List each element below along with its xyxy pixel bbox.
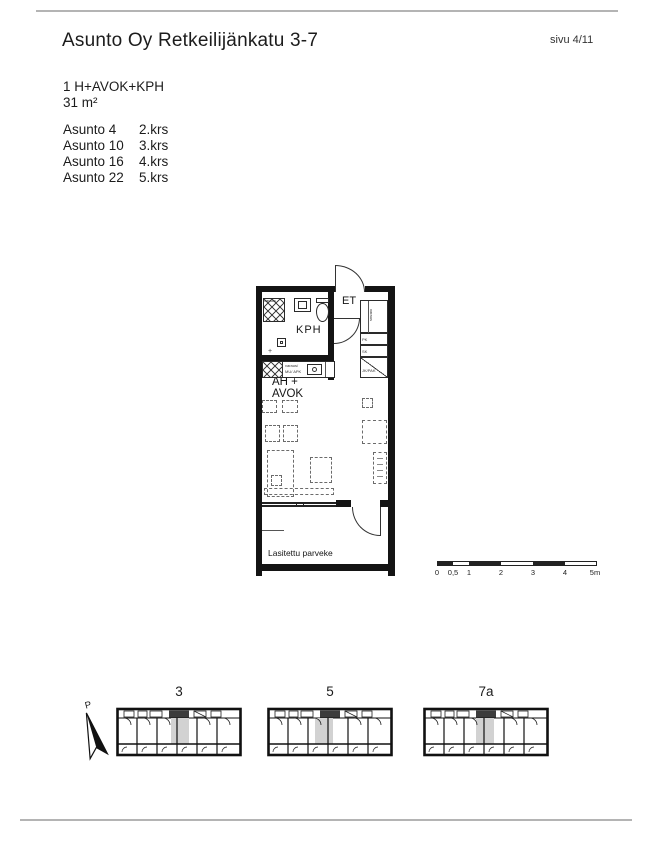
floor-plan: ET KPH AH + AVOK varaus + varaus PK SK	[256, 258, 395, 580]
furniture-outline	[265, 425, 280, 442]
bathroom-sink-box	[277, 338, 286, 347]
hall-door-arc	[334, 318, 360, 344]
scale-tick-label: 0	[435, 568, 439, 577]
counter-cell-line	[325, 362, 326, 377]
unit-floor: 4.krs	[139, 154, 168, 170]
furniture-outline	[362, 420, 387, 444]
top-scan-line	[36, 10, 618, 12]
kitchen-corner-cabinet	[263, 362, 283, 377]
cabinet-fridge-freezer: JK/PAK	[360, 357, 388, 378]
apartment-area: 31 m²	[63, 95, 164, 111]
balcony-door-leaf	[380, 507, 381, 536]
building-label: 3	[116, 684, 242, 701]
furniture-detail	[271, 475, 282, 486]
scale-tick-label: 0,5	[448, 568, 458, 577]
apartment-info: 1 H+AVOK+KPH 31 m²	[63, 79, 164, 111]
unit-row: Asunto 22 5.krs	[63, 170, 168, 186]
unit-name: Asunto 10	[63, 138, 139, 154]
document-page: Asunto Oy Retkeilijänkatu 3-7 sivu 4/11 …	[0, 0, 649, 842]
unit-row: Asunto 4 2.krs	[63, 122, 168, 138]
furniture-outline	[282, 400, 298, 413]
unit-row: Asunto 16 4.krs	[63, 154, 168, 170]
building-label: 7a	[423, 684, 549, 701]
kitchen-faucet	[312, 367, 317, 372]
unit-name: Asunto 16	[63, 154, 139, 170]
counter-rotated-text: varaus	[369, 309, 374, 321]
unit-name: Asunto 4	[63, 122, 139, 138]
window-band	[262, 502, 336, 507]
washing-machine-drum	[298, 301, 307, 309]
furniture-table-outline	[310, 457, 332, 483]
furniture-shelf-outline	[373, 452, 387, 484]
unit-name: Asunto 22	[63, 170, 139, 186]
furniture-outline-low	[264, 488, 334, 495]
scale-fill	[469, 561, 501, 566]
unit-floor: 3.krs	[139, 138, 168, 154]
scale-tick-label: 3	[531, 568, 535, 577]
apartment-type: 1 H+AVOK+KPH	[63, 79, 164, 95]
cabinet-sk: SK	[360, 345, 388, 357]
wall-right	[388, 286, 395, 576]
furniture-outline	[262, 400, 277, 413]
kitchen-counter-row: varaus/ MU/ APK	[262, 361, 335, 378]
wall-pier	[336, 500, 351, 507]
furniture-outline	[283, 425, 298, 442]
bottom-scan-line	[20, 819, 632, 821]
unit-floor: 2.krs	[139, 122, 168, 138]
bathroom-closet-text: varaus	[264, 299, 276, 304]
building-plan-icon	[423, 701, 549, 763]
scale-tick-label: 1	[467, 568, 471, 577]
kitchen-small-text1: varaus/	[285, 364, 298, 369]
wall-balcony-bottom	[256, 564, 395, 571]
scale-tick-label: 5m	[590, 568, 600, 577]
window-mullion	[296, 504, 304, 505]
site-building-7a: 7a	[423, 684, 549, 768]
living-room-label: AH + AVOK	[272, 376, 303, 400]
sink-drain	[280, 341, 283, 344]
scale-fill	[437, 561, 453, 566]
washing-machine	[294, 298, 311, 312]
wall-left	[256, 286, 262, 576]
furniture-outline	[362, 398, 373, 408]
scale-fill	[533, 561, 565, 566]
balcony-rail-tick	[262, 530, 284, 531]
scale-bar-outline	[437, 561, 597, 566]
page-number: sivu 4/11	[550, 34, 593, 46]
cabinet-pk: PK	[360, 333, 388, 345]
site-building-5: 5	[267, 684, 393, 768]
page-title: Asunto Oy Retkeilijänkatu 3-7	[62, 30, 318, 52]
north-arrow: P	[78, 700, 112, 766]
kitchen-small-text2: MU/ APK	[285, 370, 301, 375]
kitchen-sink	[307, 364, 322, 375]
scale-tick-label: 2	[499, 568, 503, 577]
wall-divider-right	[380, 500, 395, 507]
north-arrow-icon	[74, 708, 113, 763]
building-label: 5	[267, 684, 393, 701]
entrance-label: ET	[342, 295, 356, 307]
entrance-door-arc	[335, 265, 365, 292]
bathroom-label: KPH	[296, 324, 322, 336]
site-building-3: 3	[116, 684, 242, 768]
kitchen-tall-counter: varaus	[360, 300, 388, 333]
floor-drain-icon: +	[268, 350, 272, 355]
wall-top-right	[365, 286, 395, 292]
unit-floor: 5.krs	[139, 170, 168, 186]
apartment-unit-list: Asunto 4 2.krs Asunto 10 3.krs Asunto 16…	[63, 122, 168, 186]
building-plan-icon	[267, 701, 393, 763]
building-plan-icon	[116, 701, 242, 763]
unit-row: Asunto 10 3.krs	[63, 138, 168, 154]
scale-tick-label: 4	[563, 568, 567, 577]
scale-bar: 0 0,5 1 2 3 4 5m	[437, 556, 597, 576]
balcony-door-arc	[352, 507, 380, 536]
balcony-label: Lasitettu parveke	[268, 548, 333, 558]
wall-top-left	[256, 286, 335, 292]
